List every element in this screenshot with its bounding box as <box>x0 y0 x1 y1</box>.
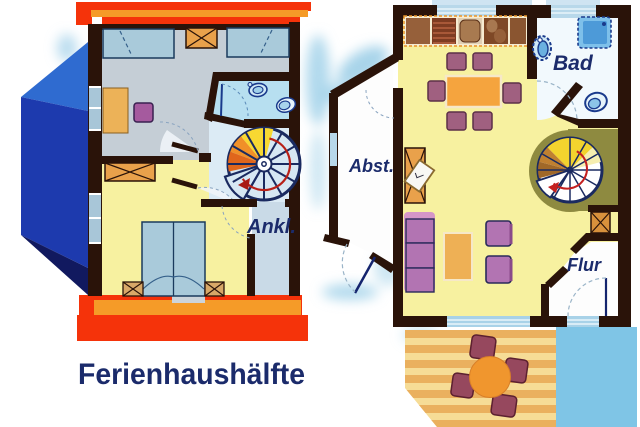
svg-text:Abst.: Abst. <box>348 156 394 176</box>
svg-text:Ankl.: Ankl. <box>246 216 296 238</box>
svg-text:Flur: Flur <box>567 255 602 275</box>
svg-text:Bad: Bad <box>553 52 594 75</box>
svg-text:Ferienhaushälfte: Ferienhaushälfte <box>78 358 305 391</box>
